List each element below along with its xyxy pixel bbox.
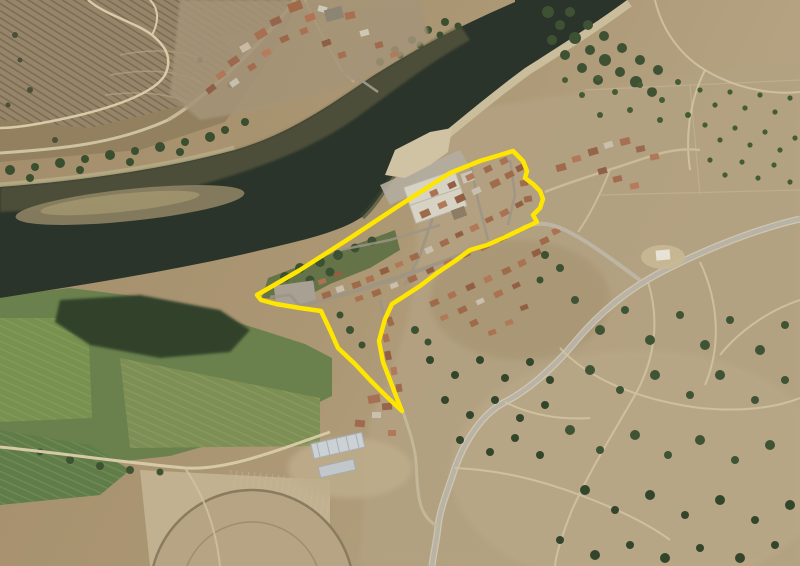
- screenshot-root: [0, 0, 800, 566]
- satellite-map[interactable]: [0, 0, 800, 566]
- isolated-building: [656, 249, 671, 260]
